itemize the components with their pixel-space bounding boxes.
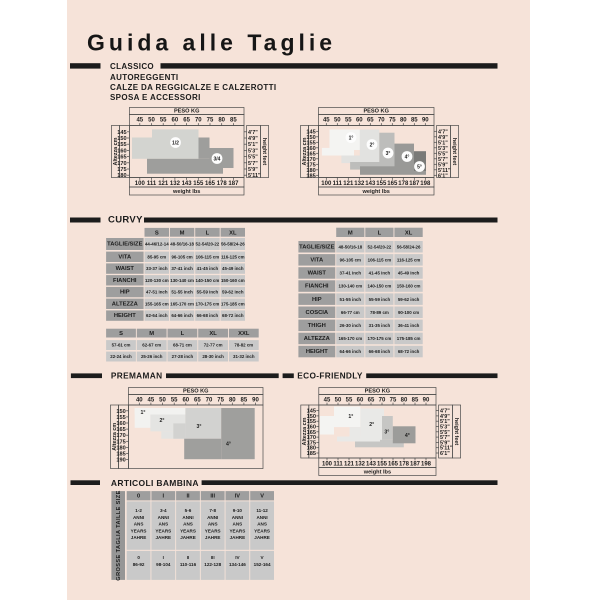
svg-text:165: 165 (117, 155, 126, 161)
svg-text:57-61 cm: 57-61 cm (112, 343, 131, 348)
svg-text:52-54/20-22: 52-54/20-22 (196, 242, 220, 247)
svg-text:62-64 inch: 62-64 inch (146, 313, 168, 318)
svg-text:XXL: XXL (238, 331, 250, 337)
svg-text:27-28 inch: 27-28 inch (172, 354, 194, 359)
svg-text:116-125 cm: 116-125 cm (397, 258, 421, 263)
svg-text:CALZE DA REGGICALZE E CALZEROT: CALZE DA REGGICALZE E CALZEROTTI (110, 83, 276, 92)
svg-text:HEIGHT: HEIGHT (306, 349, 328, 355)
svg-text:155: 155 (376, 181, 387, 187)
svg-text:145: 145 (117, 130, 126, 136)
svg-text:187: 187 (410, 462, 421, 468)
svg-text:68-71 cm: 68-71 cm (173, 343, 192, 348)
svg-text:143: 143 (182, 181, 193, 187)
svg-text:ARTICOLI BAMBINA: ARTICOLI BAMBINA (111, 478, 199, 488)
svg-text:198: 198 (420, 181, 431, 187)
svg-text:25-26 inch: 25-26 inch (141, 354, 163, 359)
svg-text:85: 85 (411, 118, 418, 124)
svg-text:190: 190 (116, 458, 125, 464)
svg-text:XL: XL (405, 230, 413, 236)
svg-text:66-77 cm: 66-77 cm (341, 310, 360, 315)
svg-text:60: 60 (356, 118, 363, 124)
svg-text:70: 70 (195, 118, 202, 124)
svg-text:GROSSE TAGLIA TAILLE SIZE: GROSSE TAGLIA TAILLE SIZE (116, 490, 122, 580)
svg-text:50: 50 (334, 118, 341, 124)
svg-text:II: II (186, 494, 190, 500)
svg-text:96-105 cm: 96-105 cm (340, 258, 361, 263)
svg-text:III: III (210, 494, 215, 500)
svg-text:weight lbs: weight lbs (172, 189, 200, 195)
svg-text:111: 111 (147, 181, 157, 187)
svg-text:130-140 cm: 130-140 cm (170, 278, 194, 283)
svg-text:64-66 inch: 64-66 inch (340, 349, 362, 354)
svg-text:150: 150 (116, 409, 125, 415)
svg-text:PREMAMAN: PREMAMAN (111, 371, 162, 381)
svg-text:M: M (180, 230, 185, 236)
svg-text:52-54/20-22: 52-54/20-22 (368, 244, 392, 249)
svg-text:M: M (149, 331, 154, 337)
svg-text:85: 85 (230, 118, 237, 124)
svg-text:165-170 cm: 165-170 cm (170, 301, 194, 306)
svg-text:ANS: ANS (134, 522, 144, 527)
svg-text:YEARS: YEARS (155, 528, 171, 533)
svg-text:YEARS: YEARS (180, 528, 196, 533)
svg-text:86-92: 86-92 (133, 562, 145, 567)
svg-text:11-12: 11-12 (256, 508, 268, 513)
svg-text:198: 198 (421, 462, 432, 468)
svg-text:VITA: VITA (310, 258, 324, 264)
svg-text:PESO KG: PESO KG (183, 388, 209, 394)
svg-text:WAIST: WAIST (308, 271, 327, 277)
svg-text:55: 55 (345, 118, 352, 124)
svg-text:JAHRE: JAHRE (230, 535, 246, 540)
svg-text:47-51 inch: 47-51 inch (146, 290, 168, 295)
svg-text:3-4: 3-4 (160, 508, 167, 513)
svg-text:9-10: 9-10 (233, 508, 243, 513)
svg-text:ANNI: ANNI (207, 515, 218, 520)
svg-text:185: 185 (116, 452, 125, 458)
svg-text:TAGLIE/SIZE: TAGLIE/SIZE (299, 244, 334, 250)
svg-text:165: 165 (205, 181, 216, 187)
svg-text:V: V (260, 494, 264, 500)
svg-text:66-68 inch: 66-68 inch (197, 313, 219, 318)
svg-text:170: 170 (117, 161, 126, 167)
svg-text:72-77 cm: 72-77 cm (204, 343, 223, 348)
svg-text:155-165 cm: 155-165 cm (145, 301, 169, 306)
svg-text:1°: 1° (348, 414, 353, 420)
svg-text:59-62 inch: 59-62 inch (222, 290, 244, 295)
svg-text:2°: 2° (160, 418, 165, 424)
svg-text:CLASSICO: CLASSICO (110, 62, 154, 71)
svg-text:100: 100 (322, 462, 333, 468)
svg-text:5°: 5° (417, 164, 422, 170)
svg-text:59-62 inch: 59-62 inch (398, 297, 420, 302)
svg-text:26-30 inch: 26-30 inch (340, 323, 362, 328)
svg-text:3°: 3° (197, 424, 202, 430)
svg-text:CURVY: CURVY (108, 215, 143, 226)
svg-text:155: 155 (193, 181, 204, 187)
svg-text:5'3": 5'3" (248, 148, 258, 154)
svg-text:0: 0 (137, 494, 140, 500)
svg-text:L: L (206, 230, 210, 236)
svg-text:PESO KG: PESO KG (363, 108, 389, 114)
svg-text:175-185 cm: 175-185 cm (221, 301, 245, 306)
svg-text:106-115 cm: 106-115 cm (368, 258, 392, 263)
svg-text:6'1": 6'1" (440, 451, 450, 457)
svg-text:PESO KG: PESO KG (365, 388, 391, 394)
svg-text:ALTEZZA: ALTEZZA (304, 336, 331, 342)
svg-text:64-66 inch: 64-66 inch (171, 313, 193, 318)
svg-text:ANS: ANS (208, 522, 218, 527)
svg-text:78-82 cm: 78-82 cm (234, 343, 253, 348)
svg-text:100: 100 (135, 181, 146, 187)
svg-text:185: 185 (307, 451, 316, 457)
svg-text:3°: 3° (386, 151, 391, 157)
svg-text:48-50/16-18: 48-50/16-18 (338, 244, 362, 249)
svg-text:5'11": 5'11" (248, 173, 261, 179)
svg-text:45: 45 (136, 118, 143, 124)
svg-text:68-72 inch: 68-72 inch (222, 313, 244, 318)
svg-text:HIP: HIP (120, 290, 130, 296)
svg-text:175: 175 (116, 439, 125, 445)
svg-text:ECO-FRIENDLY: ECO-FRIENDLY (297, 371, 363, 381)
svg-text:5'9": 5'9" (248, 167, 258, 173)
svg-text:150: 150 (117, 136, 126, 142)
svg-text:66-68 inch: 66-68 inch (369, 349, 391, 354)
svg-text:M: M (348, 230, 353, 236)
svg-text:111: 111 (333, 181, 343, 187)
svg-text:175: 175 (117, 167, 126, 173)
svg-text:160: 160 (116, 421, 125, 427)
svg-text:96-105 cm: 96-105 cm (171, 254, 192, 259)
svg-text:37-41 inch: 37-41 inch (340, 271, 362, 276)
svg-text:178: 178 (217, 181, 228, 187)
svg-text:4'7": 4'7" (248, 130, 258, 136)
svg-text:6'1": 6'1" (438, 173, 448, 179)
svg-text:ANS: ANS (183, 522, 193, 527)
svg-text:1-2: 1-2 (135, 508, 142, 513)
svg-text:AUTOREGGENTI: AUTOREGGENTI (110, 73, 179, 82)
svg-text:140-150 cm: 140-150 cm (196, 278, 220, 283)
svg-text:165: 165 (387, 181, 398, 187)
svg-text:132: 132 (170, 181, 181, 187)
svg-text:YEARS: YEARS (254, 528, 270, 533)
svg-text:70: 70 (378, 118, 385, 124)
svg-text:0: 0 (137, 555, 140, 560)
svg-text:YEARS: YEARS (229, 528, 245, 533)
svg-text:178: 178 (399, 462, 410, 468)
svg-text:155: 155 (116, 415, 125, 421)
svg-text:68-72 inch: 68-72 inch (398, 349, 420, 354)
svg-text:51-55 inch: 51-55 inch (340, 297, 362, 302)
svg-text:XL: XL (229, 230, 237, 236)
svg-text:110-116: 110-116 (180, 562, 197, 567)
svg-text:178: 178 (398, 181, 409, 187)
svg-text:III: III (211, 555, 215, 560)
svg-text:4°: 4° (405, 154, 410, 160)
svg-text:5'5": 5'5" (248, 155, 258, 161)
svg-text:COSCIA: COSCIA (306, 310, 329, 316)
svg-text:L: L (378, 230, 382, 236)
svg-text:S: S (119, 331, 123, 337)
svg-text:140-150 cm: 140-150 cm (368, 284, 392, 289)
svg-text:75: 75 (389, 118, 396, 124)
svg-text:187: 187 (409, 181, 420, 187)
svg-text:3°: 3° (384, 430, 389, 436)
svg-text:180: 180 (116, 445, 125, 451)
svg-text:143: 143 (366, 462, 377, 468)
svg-text:185: 185 (306, 173, 315, 179)
svg-text:51-55 inch: 51-55 inch (171, 290, 193, 295)
svg-text:FIANCHI: FIANCHI (113, 278, 137, 284)
svg-text:ANS: ANS (158, 522, 168, 527)
svg-text:134-146: 134-146 (229, 562, 246, 567)
svg-text:41-45 inch: 41-45 inch (197, 266, 219, 271)
svg-text:155: 155 (117, 142, 126, 148)
svg-text:143: 143 (365, 181, 376, 187)
svg-text:75: 75 (207, 118, 214, 124)
svg-text:45-49 inch: 45-49 inch (398, 271, 420, 276)
svg-text:80: 80 (218, 118, 225, 124)
svg-text:56-58/24-26: 56-58/24-26 (397, 244, 421, 249)
svg-text:ANS: ANS (257, 522, 267, 527)
svg-text:VITA: VITA (118, 254, 132, 260)
svg-text:II: II (187, 555, 190, 560)
svg-text:160: 160 (117, 148, 126, 154)
svg-text:165-170 cm: 165-170 cm (338, 336, 362, 341)
svg-text:IV: IV (235, 494, 241, 500)
svg-text:170: 170 (116, 433, 125, 439)
svg-text:weight lbs: weight lbs (362, 189, 390, 195)
svg-text:121: 121 (344, 462, 355, 468)
svg-text:80: 80 (400, 118, 407, 124)
svg-text:ANS: ANS (233, 522, 243, 527)
svg-text:YEARS: YEARS (205, 528, 221, 533)
svg-text:JAHRE: JAHRE (180, 535, 196, 540)
svg-text:180: 180 (117, 173, 126, 179)
svg-text:4°: 4° (405, 433, 410, 439)
svg-text:28-30 inch: 28-30 inch (202, 354, 224, 359)
svg-text:JAHRE: JAHRE (131, 535, 147, 540)
svg-text:48-50/16-18: 48-50/16-18 (170, 242, 194, 247)
svg-text:7-8: 7-8 (209, 508, 216, 513)
svg-text:106-115 cm: 106-115 cm (196, 254, 220, 259)
svg-text:height feet: height feet (451, 138, 457, 165)
svg-text:5'7": 5'7" (248, 161, 258, 167)
svg-text:55-59 inch: 55-59 inch (369, 297, 391, 302)
svg-text:JAHRE: JAHRE (254, 535, 270, 540)
svg-text:XL: XL (209, 331, 217, 337)
svg-text:78-89 cm: 78-89 cm (370, 310, 389, 315)
svg-text:weight lbs: weight lbs (363, 470, 391, 476)
svg-text:31-32 inch: 31-32 inch (233, 354, 255, 359)
svg-text:56-58/24-26: 56-58/24-26 (221, 242, 245, 247)
svg-text:22-24 inch: 22-24 inch (110, 354, 132, 359)
svg-text:132: 132 (354, 181, 365, 187)
svg-text:2°: 2° (370, 142, 375, 148)
svg-text:121: 121 (158, 181, 169, 187)
svg-text:33-37 inch: 33-37 inch (146, 266, 168, 271)
svg-text:152-164: 152-164 (254, 562, 271, 567)
svg-text:3/4: 3/4 (214, 156, 221, 162)
svg-text:ANNI: ANNI (182, 515, 193, 520)
svg-text:ALTEZZA: ALTEZZA (112, 301, 139, 307)
svg-text:121: 121 (343, 181, 354, 187)
svg-text:1°: 1° (349, 135, 354, 141)
svg-text:5-6: 5-6 (185, 508, 192, 513)
svg-text:60: 60 (172, 118, 179, 124)
svg-text:HEIGHT: HEIGHT (114, 313, 136, 319)
svg-text:YEARS: YEARS (131, 528, 147, 533)
svg-text:I: I (163, 555, 164, 560)
svg-text:4°: 4° (226, 441, 231, 447)
svg-text:ANNI: ANNI (158, 515, 169, 520)
svg-text:50: 50 (148, 118, 155, 124)
svg-text:98-104: 98-104 (156, 562, 171, 567)
svg-text:62-67 cm: 62-67 cm (142, 343, 161, 348)
svg-text:1/2: 1/2 (172, 140, 179, 146)
svg-text:JAHRE: JAHRE (205, 535, 221, 540)
svg-text:5'1": 5'1" (248, 142, 258, 148)
svg-text:111: 111 (333, 462, 343, 468)
svg-text:2°: 2° (369, 422, 374, 428)
svg-text:JAHRE: JAHRE (156, 535, 172, 540)
svg-text:height feet: height feet (261, 138, 267, 165)
svg-text:41-45 inch: 41-45 inch (369, 271, 391, 276)
svg-text:ANNI: ANNI (133, 515, 144, 520)
svg-text:150-160 cm: 150-160 cm (221, 278, 245, 283)
svg-text:Guida alle Taglie: Guida alle Taglie (87, 30, 336, 56)
svg-text:175-185 cm: 175-185 cm (397, 336, 421, 341)
svg-text:S: S (155, 230, 159, 236)
svg-text:L: L (181, 331, 185, 337)
svg-text:SPOSA E ACCESSORI: SPOSA E ACCESSORI (110, 93, 201, 102)
svg-text:45-49 inch: 45-49 inch (222, 266, 244, 271)
svg-text:150-160 cm: 150-160 cm (397, 284, 421, 289)
svg-text:ANNI: ANNI (256, 515, 267, 520)
svg-text:116-125 cm: 116-125 cm (221, 254, 245, 259)
svg-text:132: 132 (355, 462, 366, 468)
svg-text:187: 187 (228, 181, 239, 187)
svg-text:45: 45 (323, 118, 330, 124)
svg-text:PESO KG: PESO KG (174, 108, 200, 114)
svg-text:170-175 cm: 170-175 cm (196, 301, 220, 306)
svg-text:165: 165 (388, 462, 399, 468)
svg-text:FIANCHI: FIANCHI (305, 284, 329, 290)
svg-text:85-95 cm: 85-95 cm (147, 254, 166, 259)
svg-text:HIP: HIP (312, 297, 322, 303)
svg-text:170-175 cm: 170-175 cm (368, 336, 392, 341)
svg-text:37-41 inch: 37-41 inch (171, 266, 193, 271)
svg-text:44-46/12-14: 44-46/12-14 (145, 242, 169, 247)
svg-text:165: 165 (116, 427, 125, 433)
svg-text:ANNI: ANNI (232, 515, 243, 520)
svg-text:100: 100 (321, 181, 332, 187)
svg-text:55-59 inch: 55-59 inch (197, 290, 219, 295)
svg-text:WAIST: WAIST (116, 266, 135, 272)
svg-text:4'9": 4'9" (248, 136, 258, 142)
svg-text:1°: 1° (141, 410, 146, 416)
svg-text:155: 155 (377, 462, 388, 468)
svg-text:36-41 inch: 36-41 inch (398, 323, 420, 328)
svg-text:height feet: height feet (453, 418, 459, 445)
svg-text:122-128: 122-128 (204, 562, 221, 567)
svg-text:120-130 cm: 120-130 cm (145, 278, 169, 283)
svg-text:31-35 inch: 31-35 inch (369, 323, 391, 328)
svg-text:TAGLIE/SIZE: TAGLIE/SIZE (107, 242, 142, 248)
svg-text:130-140 cm: 130-140 cm (338, 284, 362, 289)
svg-text:65: 65 (367, 118, 374, 124)
svg-text:90: 90 (422, 118, 429, 124)
svg-text:THIGH: THIGH (308, 323, 326, 329)
svg-text:90-100 cm: 90-100 cm (398, 310, 419, 315)
svg-text:55: 55 (160, 118, 167, 124)
svg-text:65: 65 (183, 118, 190, 124)
